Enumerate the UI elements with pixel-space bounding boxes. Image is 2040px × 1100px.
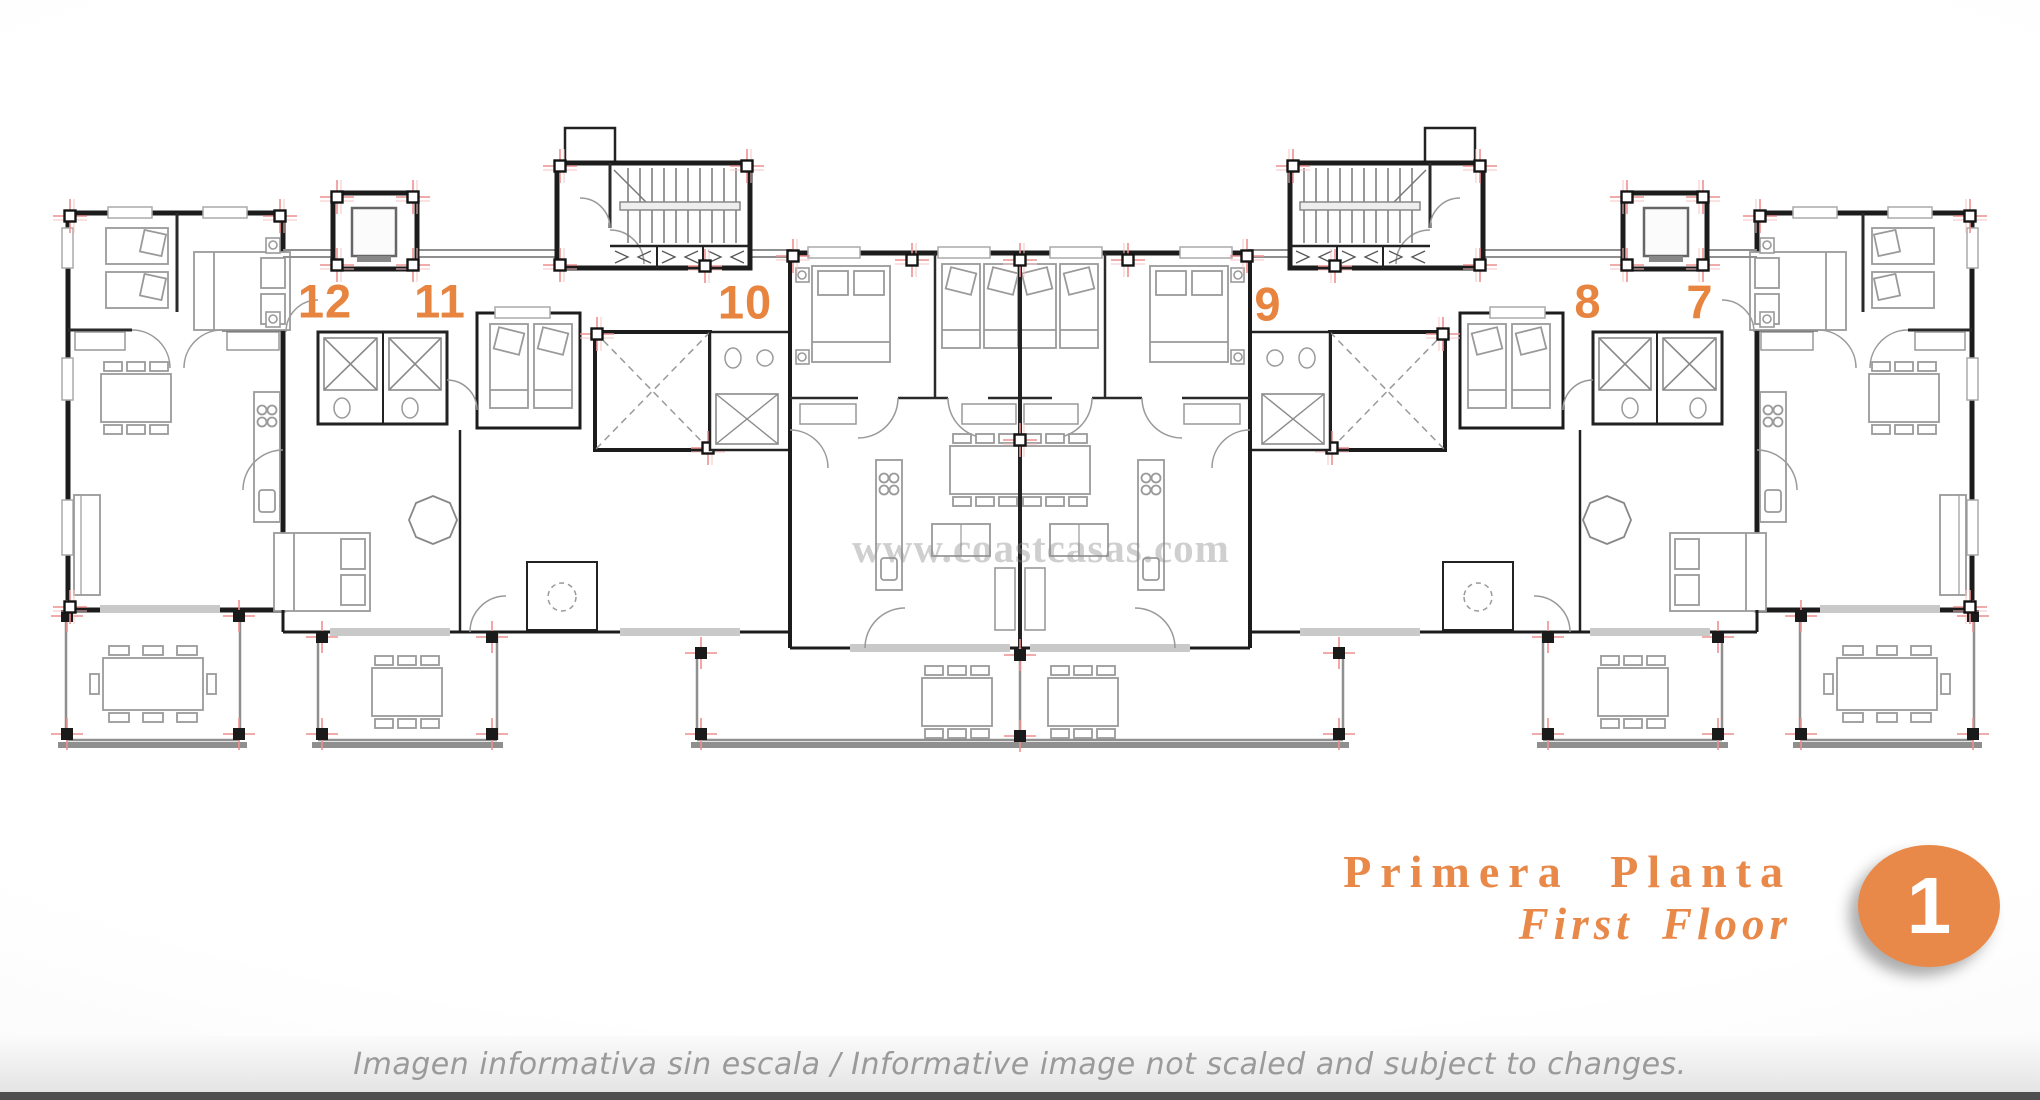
unit-number-11: 11 [414,274,466,329]
unit-number-10: 10 [718,275,772,330]
watermark: www.coastcasas.com [852,524,1230,572]
footer-bar: Imagen informativa sin escala / Informat… [0,1036,2040,1092]
building [51,128,1989,752]
floor-title-es: Primera Planta [1343,846,1792,898]
floor-number-badge: 1 [1858,845,2000,967]
unit-number-7: 7 [1686,275,1713,330]
page: 12 11 10 9 8 7 www.coastcasas.com Primer… [0,0,2040,1100]
unit-number-9: 9 [1254,277,1281,332]
footer-strip [0,1092,2040,1100]
floor-title-en: First Floor [1343,898,1792,950]
unit-number-8: 8 [1574,274,1601,329]
unit-number-12: 12 [298,274,352,329]
floor-number: 1 [1907,860,1952,952]
disclaimer-text: Imagen informativa sin escala / Informat… [353,1047,1686,1082]
title-block: Primera Planta First Floor [1343,846,1792,950]
